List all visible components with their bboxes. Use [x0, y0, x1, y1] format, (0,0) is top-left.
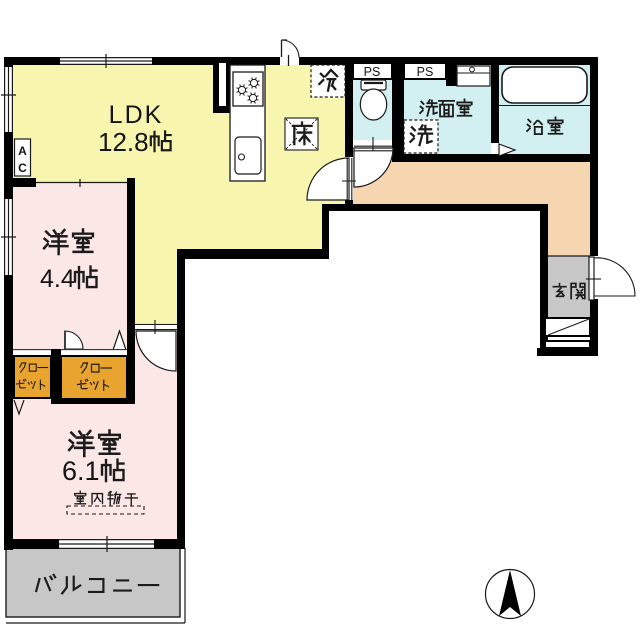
svg-text:LDK: LDK	[109, 101, 164, 129]
svg-text:PS: PS	[417, 65, 434, 79]
svg-text:4.4: 4.4	[40, 265, 75, 293]
svg-text:PS: PS	[364, 65, 381, 79]
svg-text:A: A	[18, 144, 27, 158]
svg-text:12.8: 12.8	[98, 127, 149, 157]
svg-text:C: C	[18, 161, 27, 175]
svg-text:6.1: 6.1	[62, 456, 100, 486]
